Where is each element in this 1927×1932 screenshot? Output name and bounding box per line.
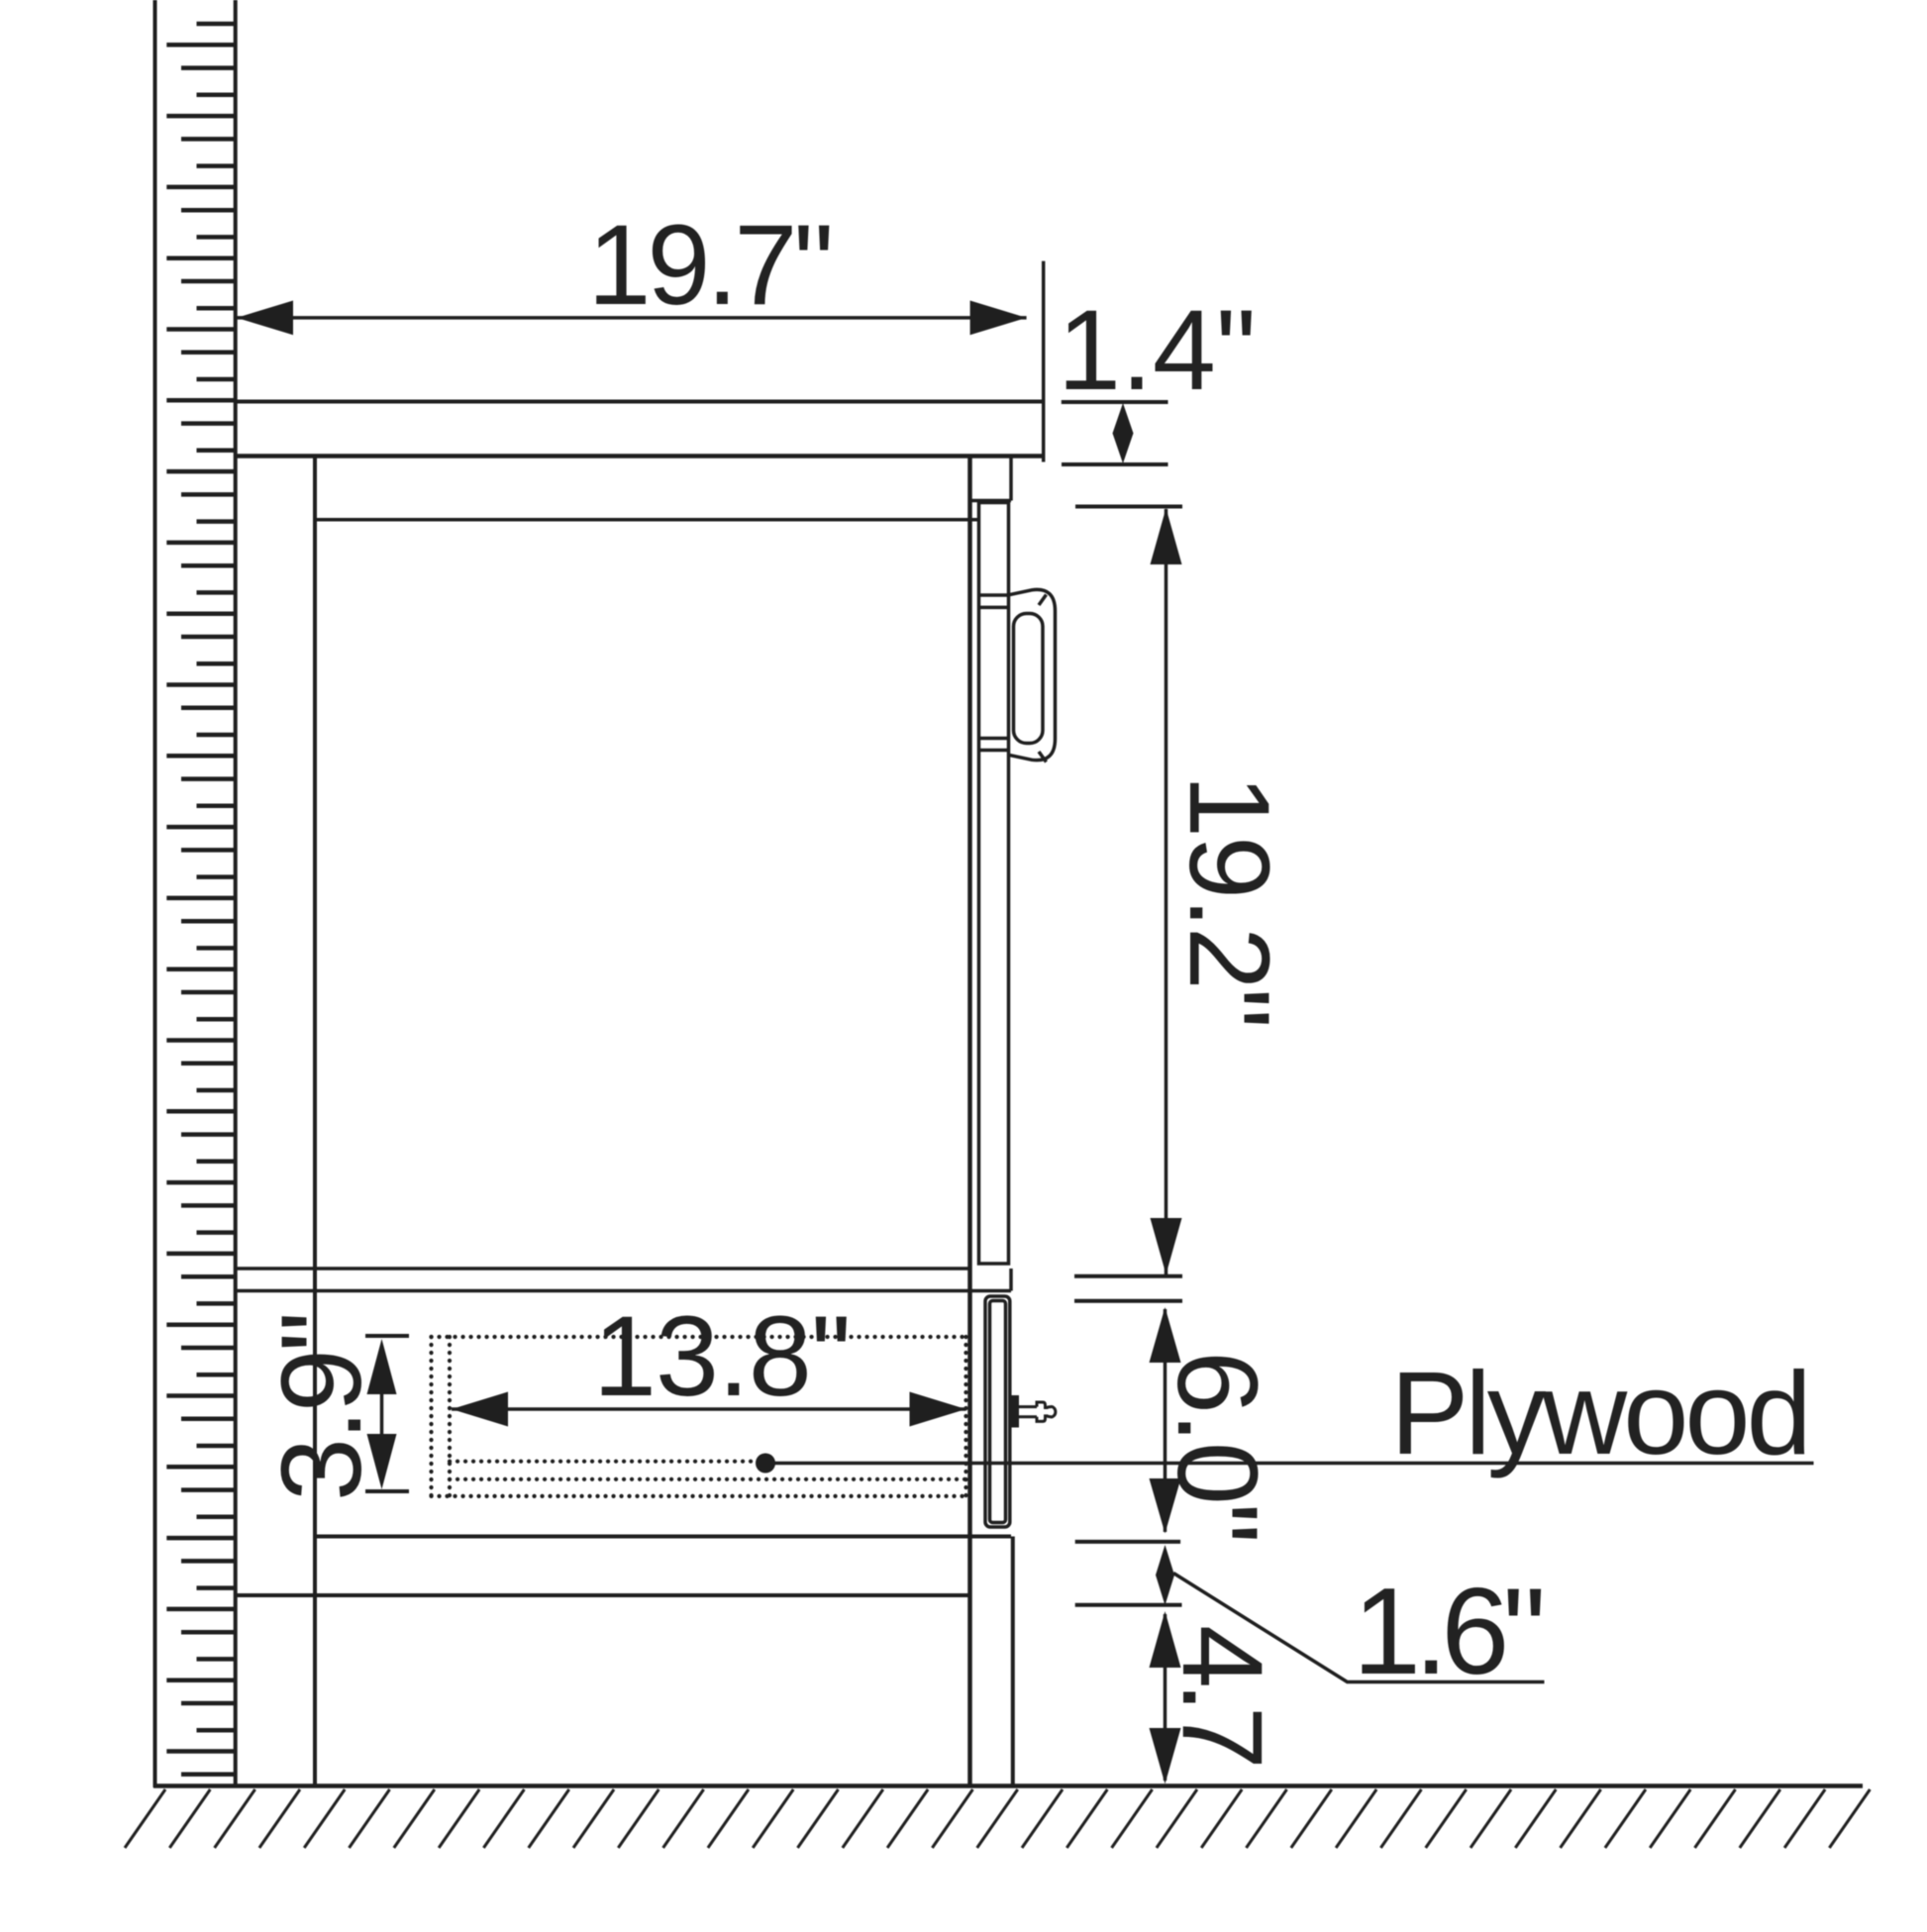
svg-text:6.0": 6.0" (1154, 1351, 1280, 1542)
svg-text:13.8": 13.8" (593, 1293, 851, 1420)
svg-text:4.7: 4.7 (1159, 1625, 1285, 1765)
svg-text:3.9": 3.9" (258, 1314, 385, 1501)
svg-text:1.6": 1.6" (1353, 1564, 1541, 1700)
svg-text:19.2": 19.2" (1166, 774, 1292, 1027)
svg-text:1.4": 1.4" (1058, 287, 1257, 414)
svg-text:19.7": 19.7" (588, 202, 831, 329)
svg-text:Plywood: Plywood (1390, 1348, 1808, 1479)
